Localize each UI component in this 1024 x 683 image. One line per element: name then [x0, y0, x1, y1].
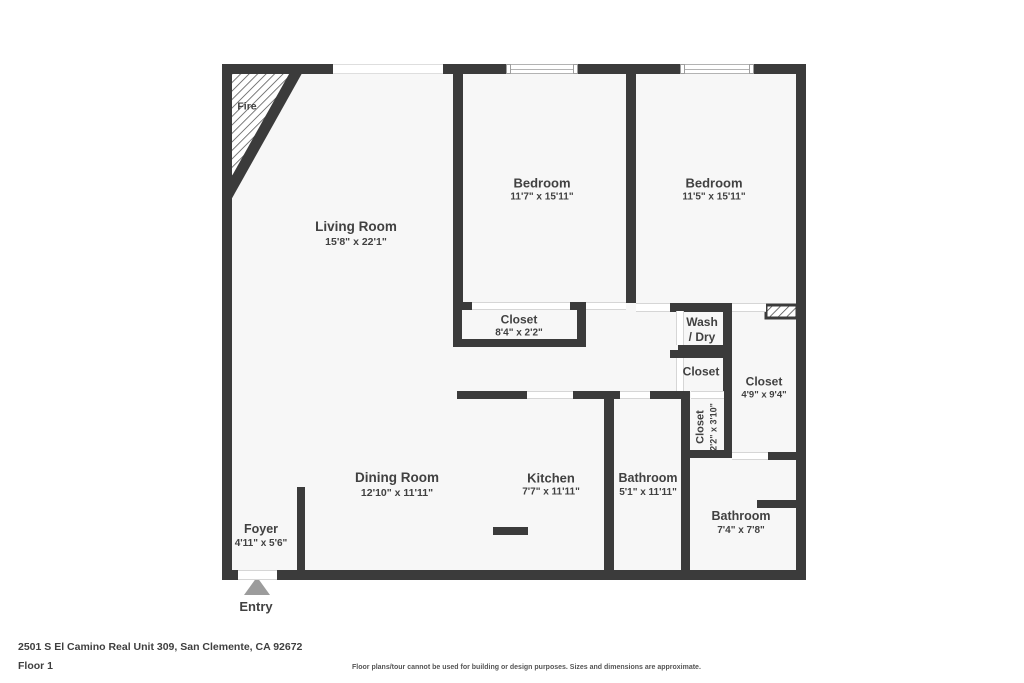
room-name: Bedroom: [510, 176, 573, 192]
room-dims: 7'4" x 7'8": [711, 525, 770, 538]
bathroom2-door-opening: [732, 452, 768, 460]
living-room-window: [333, 64, 443, 74]
wall-right: [796, 64, 806, 580]
room-name: Kitchen: [522, 471, 580, 487]
room-name: / Dry: [686, 330, 718, 345]
room-name: Closet: [683, 365, 720, 380]
room-name: Dining Room: [355, 470, 439, 487]
bedroom1-window-cap: [506, 64, 511, 74]
footer-disclaimer: Floor plans/tour cannot be used for buil…: [352, 664, 701, 671]
bathroom2-label: Bathroom 7'4" x 7'8": [711, 509, 770, 537]
bedroom1-window-cap: [573, 64, 578, 74]
wall-closet3-bottom-stub: [768, 452, 796, 460]
wall-living-bedroom1: [453, 74, 463, 302]
kitchen-label: Kitchen 7'7" x 11'11": [522, 471, 580, 500]
room-name: Closet: [495, 312, 543, 327]
footer-floor-label: Floor 1: [18, 660, 53, 672]
closet4-label: Closet 2'2" x 3'10": [695, 403, 720, 451]
room-dims: 11'5" x 15'11": [682, 192, 745, 205]
bedroom2-window: [680, 64, 754, 74]
entry-label: Entry: [239, 599, 272, 615]
fire-label: Fire: [237, 100, 256, 113]
bathroom1-label: Bathroom 5'1" x 11'11": [618, 471, 677, 499]
room-dims: 8'4" x 2'2": [495, 327, 543, 340]
room-name: Bathroom: [711, 509, 770, 525]
wall-bottom-1: [222, 570, 238, 580]
closet2-label: Closet: [683, 365, 720, 380]
room-name: Bedroom: [682, 176, 745, 192]
wall-top-2: [443, 64, 506, 74]
room-dims: 11'7" x 15'11": [510, 192, 573, 205]
room-dims: 15'8" x 22'1": [315, 236, 397, 249]
closet-shelf-hatch: [766, 305, 797, 318]
wall-top-1: [222, 64, 336, 74]
room-dims: 7'7" x 11'11": [522, 487, 580, 500]
wall-bathroom-divider: [681, 391, 690, 570]
wall-closet1-bottom: [453, 339, 586, 347]
entry-text: Entry: [239, 599, 272, 614]
room-name: Wash: [686, 315, 718, 330]
room-name: Bathroom: [618, 471, 677, 487]
wall-top-3: [578, 64, 680, 74]
washdry-label: Wash / Dry: [686, 315, 718, 345]
wall-bathroom2-stub: [757, 500, 796, 508]
room-dims: 4'11" x 5'6": [235, 538, 288, 551]
footer-address: 2501 S El Camino Real Unit 309, San Clem…: [18, 641, 302, 653]
wall-kitchen-bathroom: [604, 391, 614, 570]
room-name: Closet: [741, 375, 786, 390]
wall-foyer: [297, 487, 305, 570]
wall-bottom-2: [277, 570, 806, 580]
living-room-label: Living Room 15'8" x 22'1": [315, 219, 397, 249]
closet3-top-opening: [732, 303, 766, 312]
room-dims: 12'10" x 11'11": [355, 487, 439, 500]
room-dims: 2'2" x 3'10": [708, 403, 719, 451]
entry-door-opening: [238, 570, 277, 580]
wall-closet4-bottom: [683, 450, 732, 458]
floorplan-page: Fire Living Room 15'8" x 22'1" Bedroom 1…: [0, 0, 1024, 683]
hall-door-opening: [527, 391, 573, 399]
wall-hall-3: [650, 391, 683, 399]
bedroom1-door-opening: [586, 302, 626, 310]
bedroom2-window-cap: [680, 64, 685, 74]
kitchen-counter-mark: [493, 527, 528, 535]
room-name: Closet: [695, 403, 709, 451]
room-dims: 5'1" x 11'11": [618, 487, 677, 500]
wall-hall-1: [457, 391, 527, 399]
room-dims: 4'9" x 9'4": [741, 390, 786, 402]
fire-text: Fire: [237, 100, 256, 112]
room-name: Foyer: [235, 522, 288, 538]
dining-room-label: Dining Room 12'10" x 11'11": [355, 470, 439, 500]
closet1-sliding-opening: [472, 302, 570, 310]
bedroom2-door-opening: [636, 303, 670, 312]
foyer-label: Foyer 4'11" x 5'6": [235, 522, 288, 550]
bathroom1-door-opening: [620, 391, 650, 399]
bedroom1-window: [506, 64, 578, 74]
washdry-door-opening: [676, 311, 684, 345]
bedroom2-label: Bedroom 11'5" x 15'11": [682, 176, 745, 205]
bedroom1-label: Bedroom 11'7" x 15'11": [510, 176, 573, 205]
bedroom2-window-cap: [749, 64, 754, 74]
closet1-label: Closet 8'4" x 2'2": [495, 312, 543, 340]
closet3-label: Closet 4'9" x 9'4": [741, 375, 786, 402]
room-name: Living Room: [315, 219, 397, 236]
wall-left: [222, 64, 232, 580]
wall-closet4-right: [724, 391, 732, 458]
wall-bedroom-divider: [626, 74, 636, 303]
closet4-door-opening: [691, 391, 724, 399]
